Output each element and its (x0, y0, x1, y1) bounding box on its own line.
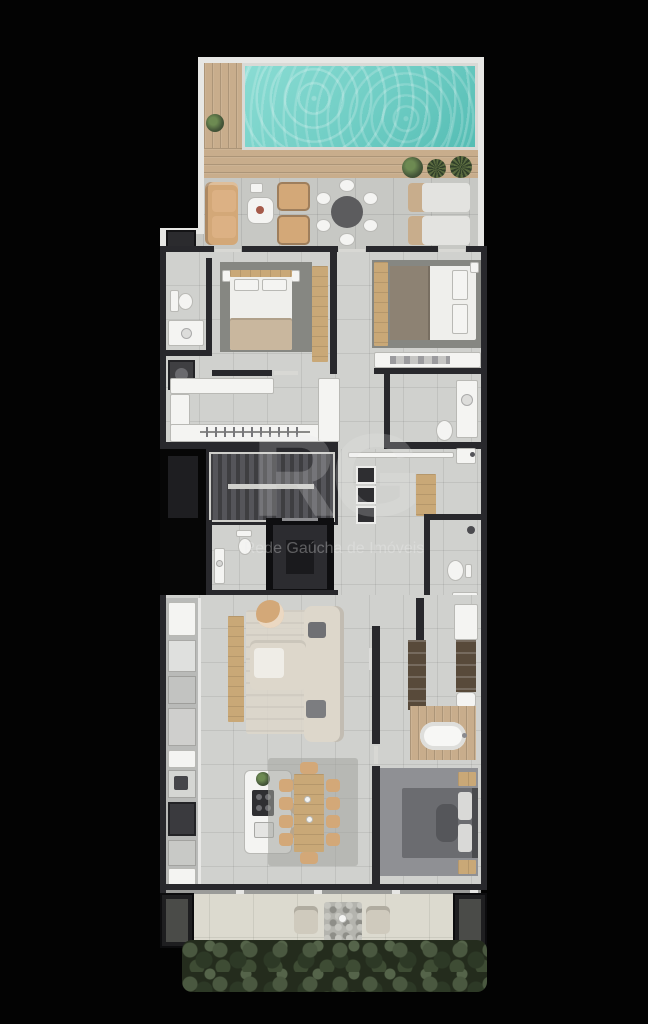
dining-chair (326, 779, 340, 792)
kitchen-sink (174, 776, 188, 790)
table-decor (304, 796, 311, 803)
table-decor (256, 206, 264, 214)
wall-segment (374, 368, 487, 374)
dining-table (294, 774, 324, 852)
sink-basin (461, 394, 473, 406)
sofa-pillow (308, 622, 326, 638)
potted-plant (206, 114, 224, 132)
bed-headboard (472, 788, 478, 858)
faucet (470, 452, 475, 457)
swimming-pool (242, 63, 478, 150)
side-table (250, 183, 263, 193)
sofa-pillow (306, 700, 326, 718)
outdoor-chair (339, 233, 355, 246)
door-leaf (274, 371, 298, 375)
sofa-throw (254, 648, 284, 678)
table-decor (306, 816, 313, 823)
sideboard (228, 616, 244, 722)
wardrobe (374, 262, 388, 346)
lounge-chair (277, 215, 310, 245)
dining-chair (300, 762, 318, 774)
toilet (178, 293, 193, 310)
nightstand (291, 270, 300, 282)
bed-blanket (390, 266, 430, 340)
bed-blanket (230, 318, 292, 350)
bathroom-vanity (456, 380, 478, 438)
door-leaf (374, 746, 378, 764)
closet-cabinet (454, 604, 478, 640)
niche-shelf (356, 486, 376, 504)
nightstand (470, 262, 479, 273)
bed-pillow (262, 279, 287, 291)
wall-segment (160, 442, 338, 449)
bed-pillow (234, 279, 259, 291)
bed-pillow (452, 270, 468, 300)
tv-wall (372, 626, 380, 744)
toilet-tank (236, 530, 252, 537)
shaft (168, 456, 198, 518)
nightstand (458, 860, 476, 874)
outdoor-dining-table (331, 196, 363, 228)
wall-segment (428, 514, 487, 520)
tub-faucet (462, 733, 467, 738)
dining-chair (279, 833, 293, 846)
dining-chair (326, 833, 340, 846)
toilet (447, 560, 464, 581)
kitchen-cabinet (168, 708, 196, 746)
table-decor (338, 914, 347, 923)
elevator-door (282, 518, 318, 521)
elevator-cab (286, 540, 314, 574)
bathtub (420, 722, 466, 750)
hedge-plants (182, 940, 487, 992)
balcony-armchair (366, 906, 390, 934)
toilet (238, 538, 252, 555)
outdoor-chair (316, 192, 331, 205)
stair-handrail (228, 484, 314, 489)
refrigerator (168, 640, 196, 672)
wardrobe (312, 266, 328, 362)
kitchen-cabinet (168, 750, 196, 768)
sink-basin (181, 328, 192, 339)
sun-lounger (408, 183, 470, 212)
sink-basin (216, 560, 223, 567)
wall-terrace-right (478, 57, 484, 252)
entry-door (416, 474, 436, 516)
dining-chair (326, 797, 340, 810)
planter-fill (459, 899, 481, 942)
closet-shelving (408, 640, 426, 710)
outdoor-chair (363, 192, 378, 205)
closet-shelf (170, 378, 274, 394)
poolside-plant (402, 157, 423, 178)
planter-fill (166, 899, 188, 942)
toilet (436, 420, 453, 441)
wall-segment (166, 350, 212, 356)
wall-terrace-left (198, 57, 204, 234)
wall-terrace-top (198, 57, 484, 63)
balcony-armchair (294, 906, 318, 934)
wall-closet (416, 598, 424, 640)
outdoor-chair (363, 219, 378, 232)
outdoor-sofa-cushion (212, 216, 236, 238)
oven (168, 802, 196, 836)
shower-head (467, 526, 475, 534)
bed-pillow (452, 304, 468, 334)
bed-headboard (230, 270, 292, 277)
niche-shelf (356, 466, 376, 484)
wall-outer-right (481, 252, 487, 890)
wall-segment (212, 370, 272, 376)
kitchen-cabinet (168, 602, 196, 636)
poolside-grass-plant (427, 159, 446, 178)
wall-corridor (330, 252, 337, 374)
bed-pillow (458, 824, 472, 852)
kitchen-cabinet (168, 840, 196, 866)
burner (256, 805, 262, 811)
wall-master (372, 766, 380, 888)
tv-panel (369, 648, 372, 670)
closet-shelving (456, 640, 476, 692)
closet-shelf-column (318, 378, 340, 442)
bed-blanket-roll (436, 804, 458, 842)
pouf-chair (256, 600, 284, 628)
dining-chair (279, 815, 293, 828)
closet-hangers (206, 427, 304, 437)
toilet-tank (465, 564, 472, 578)
console-table (348, 452, 454, 458)
floor-plan: RG Rede Gaúcha de Imóveis (0, 0, 648, 1024)
dining-chair (326, 815, 340, 828)
wall-bathroom2 (384, 374, 390, 449)
niche-shelf (356, 506, 376, 524)
lounge-chair (277, 182, 310, 211)
burner (256, 794, 262, 800)
dining-chair (300, 852, 318, 864)
outdoor-chair (316, 219, 331, 232)
dining-chair (279, 779, 293, 792)
outdoor-chair (339, 179, 355, 192)
wall-bathroom1 (206, 258, 212, 356)
dining-chair (279, 797, 293, 810)
wall-lavabo (206, 520, 212, 598)
kitchen-cabinet (168, 676, 196, 704)
sun-lounger (408, 216, 470, 245)
outdoor-sofa-cushion (212, 190, 236, 212)
nightstand (458, 772, 476, 786)
folded-clothes (390, 356, 450, 364)
poolside-grass-plant (450, 156, 472, 178)
counter-edge (198, 598, 201, 890)
bed-pillow (458, 792, 472, 820)
